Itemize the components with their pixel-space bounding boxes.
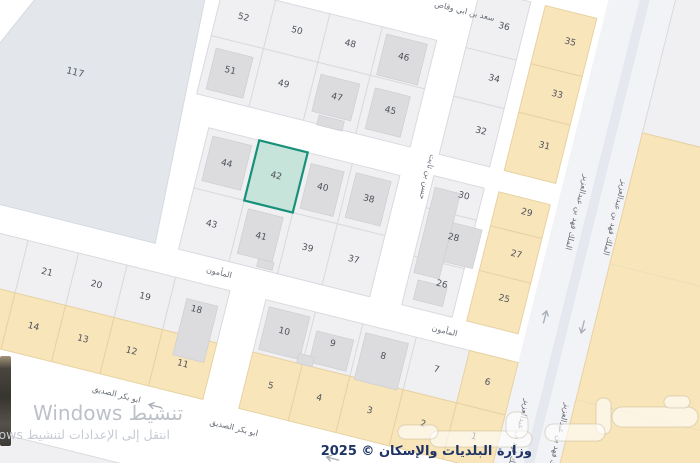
windows-activation-watermark-line2: انتقل إلى الإعدادات لتنشيط Windows [0,427,170,442]
map-attribution: وزارة البلديات والإسكان © 2025 [321,444,532,459]
map-canvas[interactable]: 1175250484651494745363432302826353331292… [0,0,700,463]
parcel-map[interactable]: 1175250484651494745363432302826353331292… [0,0,700,463]
windows-activation-watermark-line1: تنشيط Windows [33,401,183,425]
